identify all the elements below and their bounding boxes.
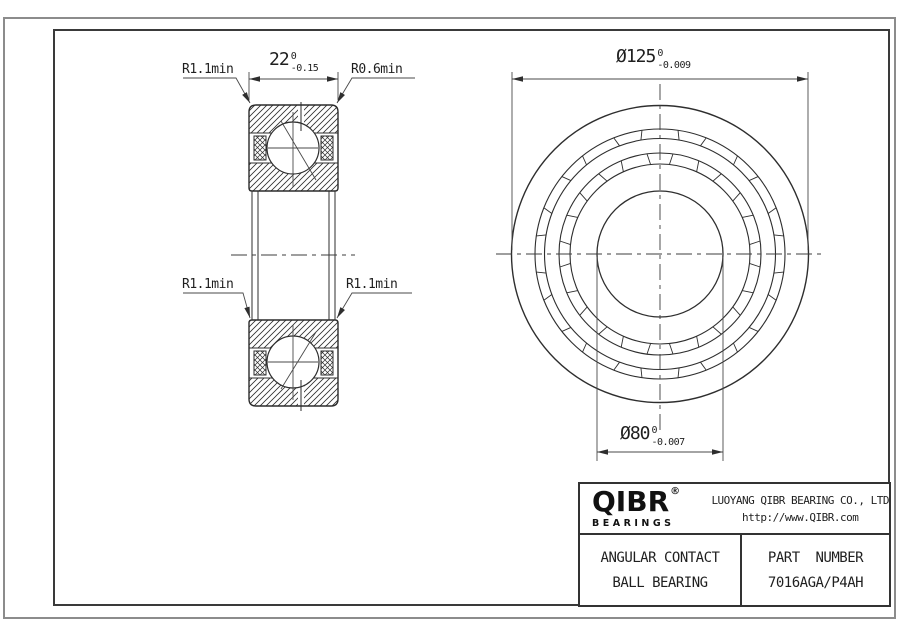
drawing-sheet: R1.1min R0.6min R1.1min R1.1min 22 0 -0.… <box>0 0 900 636</box>
dim-bore-tolerance: 0 -0.007 <box>652 425 685 449</box>
dim-width-lines <box>249 72 338 100</box>
dim-bore-tol-lower: -0.007 <box>652 437 685 449</box>
title-block-detail-row: ANGULAR CONTACT BALL BEARING PART NUMBER… <box>580 533 889 605</box>
dim-od-text: Ø125 0 -0.009 <box>616 48 690 72</box>
logo-subtext: BEARINGS <box>592 518 711 529</box>
part-number-value: 7016AGA/P4AH <box>768 575 863 591</box>
product-name-cell: ANGULAR CONTACT BALL BEARING <box>580 535 742 605</box>
section-bottom <box>249 320 338 411</box>
company-website[interactable]: http://www.QIBR.com <box>742 511 858 524</box>
label-radius-top-left: R1.1min <box>182 63 233 76</box>
label-radius-mid-left: R1.1min <box>182 278 233 291</box>
dim-width-tolerance: 0 -0.15 <box>291 51 319 75</box>
company-name: LUOYANG QIBR BEARING CO., LTD <box>711 494 889 507</box>
dim-width-value: 22 <box>269 51 289 69</box>
title-block: QIBR ® BEARINGS LUOYANG QIBR BEARING CO.… <box>578 482 891 607</box>
dim-od-tolerance: 0 -0.009 <box>657 48 690 72</box>
logo-text: QIBR <box>592 488 669 516</box>
title-block-header-row: QIBR ® BEARINGS LUOYANG QIBR BEARING CO.… <box>580 484 889 533</box>
cage-section-bottom-right <box>321 351 333 375</box>
dim-od-tol-lower: -0.009 <box>657 60 690 72</box>
dim-bore-text: Ø80 0 -0.007 <box>620 425 685 449</box>
cage-section-top-right <box>321 136 333 160</box>
cage-section-bottom-left <box>254 351 266 375</box>
logo: QIBR ® BEARINGS <box>580 488 711 529</box>
part-number-cell: PART NUMBER 7016AGA/P4AH <box>742 535 889 605</box>
product-name-line1: ANGULAR CONTACT <box>601 550 720 566</box>
bore-lines <box>252 191 335 320</box>
dim-bore-tol-upper: 0 <box>652 425 685 437</box>
dim-width-tol-lower: -0.15 <box>291 63 319 75</box>
company-info: LUOYANG QIBR BEARING CO., LTD http://www… <box>711 494 889 524</box>
label-radius-top-right: R0.6min <box>351 63 402 76</box>
section-top <box>249 102 338 191</box>
registered-trademark-symbol: ® <box>670 486 680 497</box>
dim-od-tol-upper: 0 <box>657 48 690 60</box>
dim-bore-value: Ø80 <box>620 425 650 443</box>
cage-section-top-left <box>254 136 266 160</box>
label-radius-mid-right: R1.1min <box>346 278 397 291</box>
part-number-label: PART NUMBER <box>768 550 863 566</box>
dim-od-value: Ø125 <box>616 48 655 66</box>
front-view <box>496 72 824 461</box>
dim-width-text: 22 0 -0.15 <box>269 51 318 75</box>
cross-section-view <box>183 72 415 411</box>
dim-width-tol-upper: 0 <box>291 51 319 63</box>
product-name-line2: BALL BEARING <box>612 575 707 591</box>
